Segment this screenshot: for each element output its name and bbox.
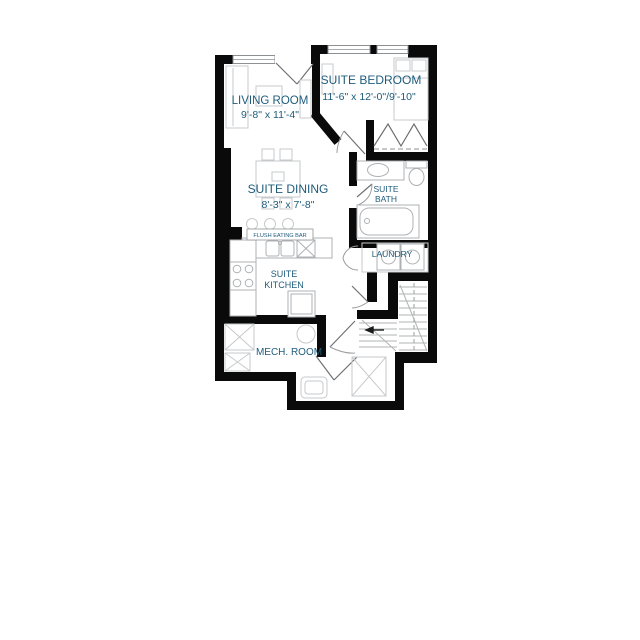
- toilet-tank: [406, 161, 427, 168]
- wall-left: [215, 55, 224, 381]
- suite-bedroom-label: SUITE BEDROOM: [321, 73, 422, 87]
- kitchen-sink-right: [281, 241, 294, 256]
- sump-inner: [305, 381, 323, 394]
- laundry-door-swing-bottom: [343, 258, 358, 270]
- mech-door-leaf: [330, 321, 355, 347]
- flush-eating-bar-label: FLUSH EATING BAR: [253, 233, 306, 239]
- entry-door-leaf-left: [276, 63, 297, 84]
- dining-chair-1: [262, 149, 274, 160]
- laundry-label: LAUNDRY: [372, 249, 413, 259]
- pillow-2: [412, 60, 426, 71]
- mech-door-swing: [330, 347, 355, 353]
- ext-door-leaf-left: [316, 356, 334, 380]
- stair-door-swing: [352, 302, 368, 308]
- fridge: [288, 291, 315, 317]
- wall-kitchen-stub: [230, 227, 242, 241]
- bedroom-closet: [374, 124, 428, 149]
- living-room-dims: 9'-8" x 11'-4": [241, 109, 299, 121]
- kitchen-sink-left: [266, 241, 279, 256]
- wall-right: [428, 45, 437, 363]
- suite-dining-label: SUITE DINING: [248, 182, 329, 196]
- dining-chair-2: [280, 149, 292, 160]
- floor-plan: LIVING ROOM 9'-8" x 11'-4" SUITE BEDROOM…: [0, 0, 640, 640]
- stair-door-leaf: [352, 286, 368, 302]
- wall-bath-top: [366, 152, 437, 161]
- ext-door-leaf-right: [334, 357, 357, 380]
- suite-dining-dims: 8'-3" x 7'-8": [262, 199, 315, 211]
- living-room-label: LIVING ROOM: [232, 95, 309, 107]
- water-heater: [297, 325, 315, 343]
- wall-living-bedroom: [312, 54, 320, 116]
- wall-stair-side: [388, 281, 398, 315]
- mech-room-label: MECH. ROOM: [256, 347, 322, 358]
- toilet-bowl: [409, 169, 424, 186]
- wall-closet-side: [366, 120, 374, 160]
- bedroom-door-swing: [337, 131, 344, 153]
- suite-kitchen-label-2: KITCHEN: [264, 280, 304, 290]
- bar-stools: [247, 219, 294, 230]
- dining-centerpiece: [272, 172, 284, 181]
- entry-opening: [275, 55, 311, 65]
- wall-bath-left-upper: [349, 152, 357, 186]
- wall-hall-stub: [367, 272, 377, 302]
- suite-kitchen-label-1: SUITE: [271, 269, 298, 279]
- wall-bottom-left: [215, 372, 296, 381]
- closet-bifold-doors: [374, 124, 427, 146]
- wall-laundry-bottom: [388, 272, 437, 281]
- wall-bottom: [287, 401, 404, 410]
- bedroom-door-leaf: [344, 131, 365, 154]
- pillow-1: [396, 60, 410, 71]
- wall-bedroom-diagonal: [314, 113, 338, 142]
- suite-bedroom-dims: 11'-6" x 12'-0"/9'-10": [322, 91, 416, 103]
- wall-stair-landing: [357, 310, 398, 319]
- bed: [394, 58, 428, 120]
- bedroom-furniture: [322, 58, 428, 120]
- suite-bath-label-2: BATH: [375, 194, 397, 204]
- suite-bath-label-1: SUITE: [373, 184, 398, 194]
- floor-plan-page: LIVING ROOM 9'-8" x 11'-4" SUITE BEDROOM…: [0, 0, 640, 640]
